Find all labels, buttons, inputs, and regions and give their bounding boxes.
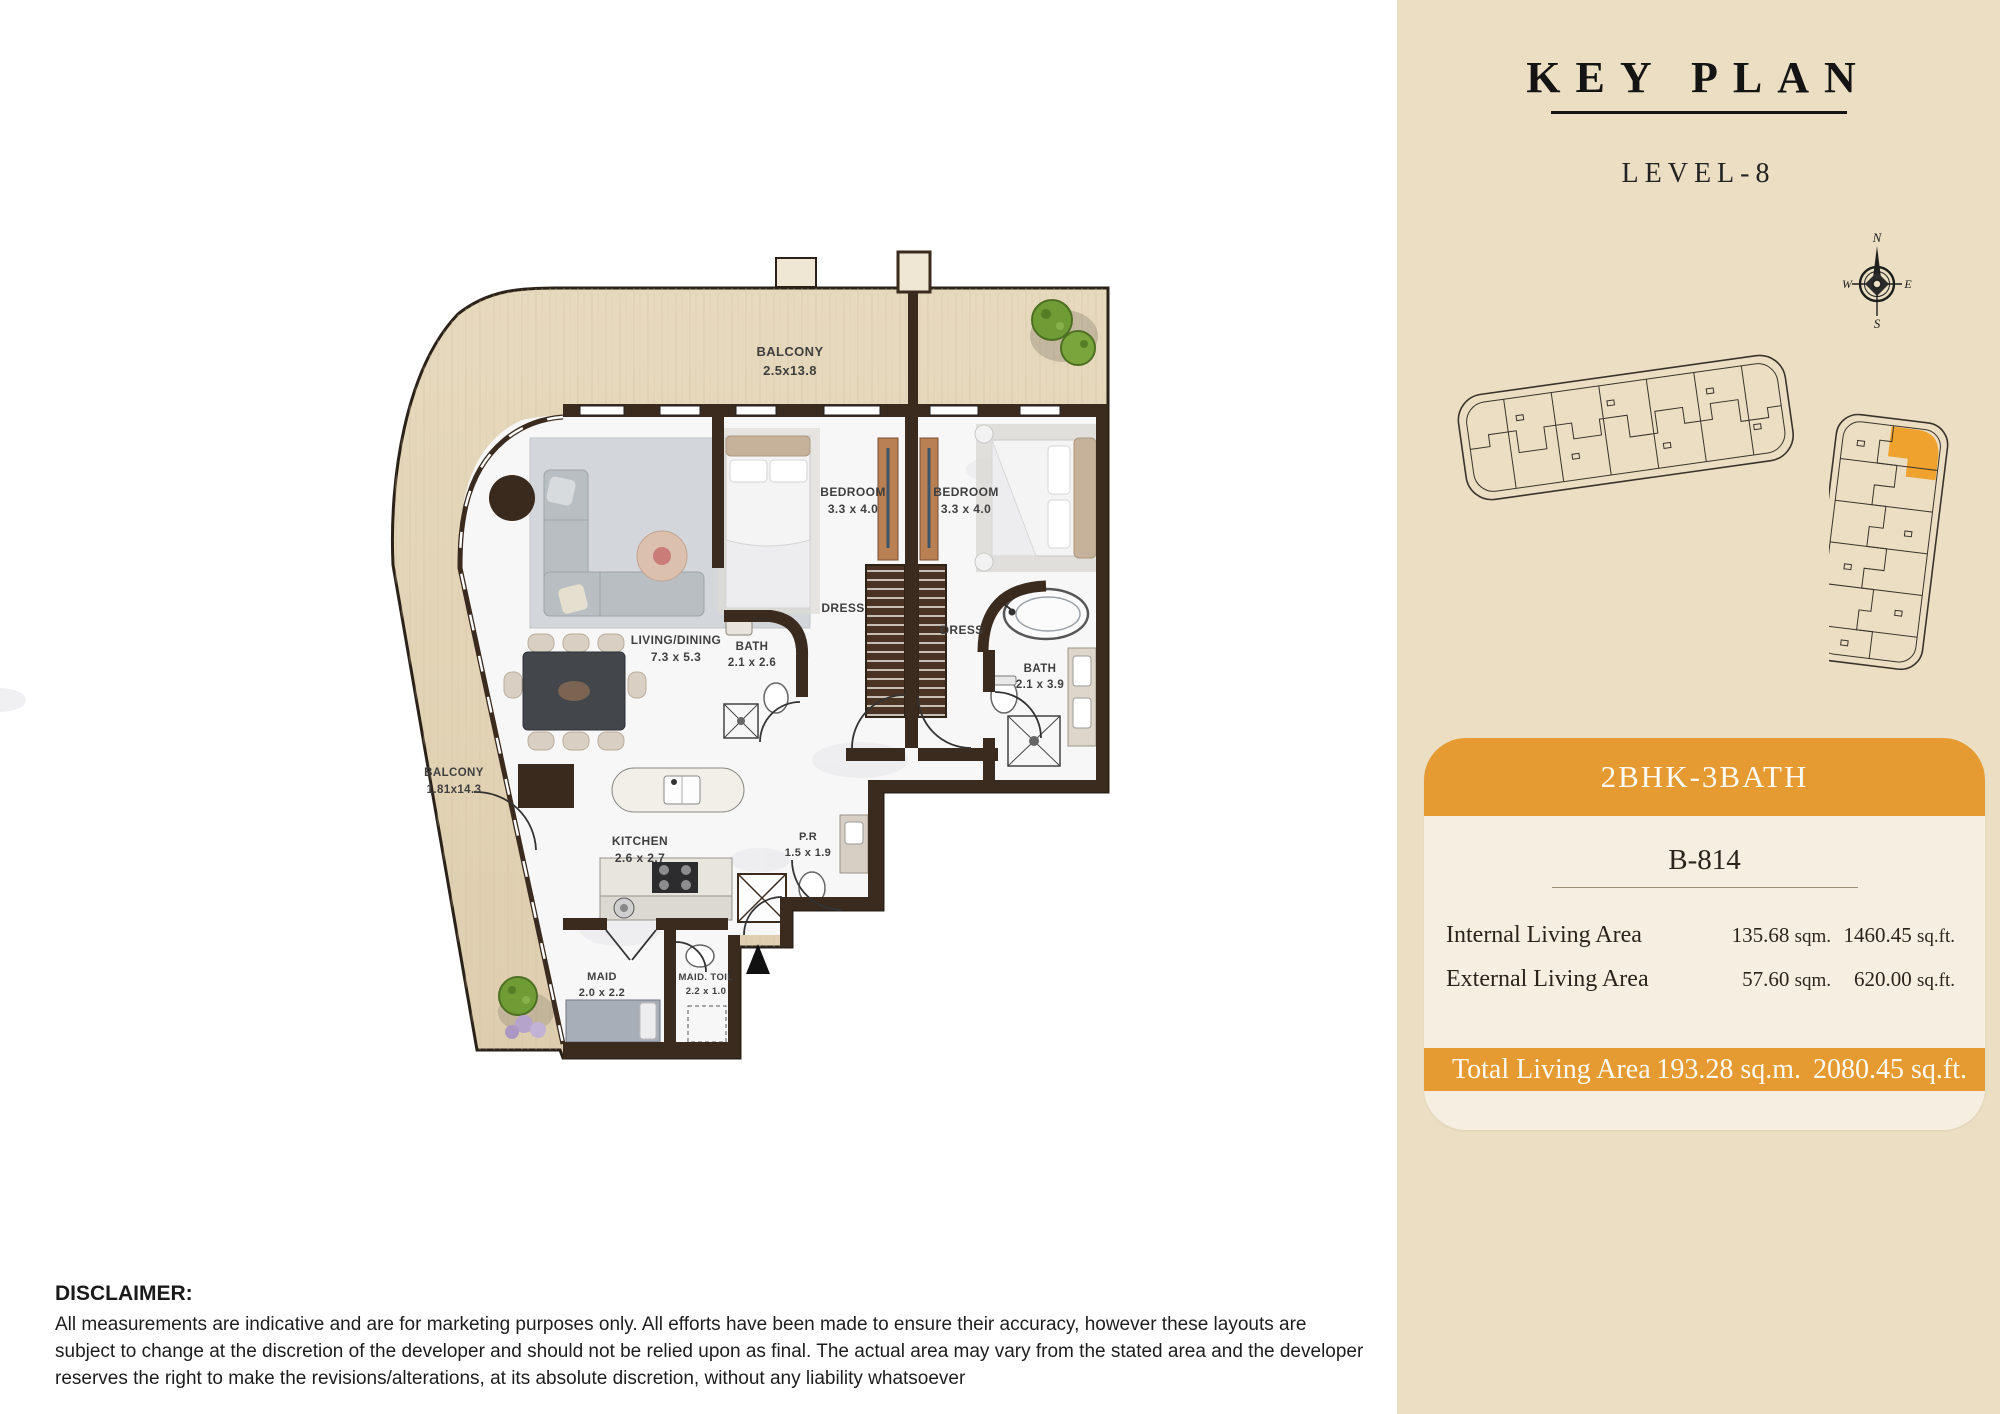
compass-icon: N W E S [1839,228,1915,332]
label-maid-dim: 2.0 x 2.2 [579,987,625,999]
disclaimer-title: DISCLAIMER: [55,1282,1370,1306]
keyplan-panel: KEY PLAN LEVEL-8 N W E S [1397,0,2000,1414]
internal-sqm: 135.68 [1732,923,1790,947]
label-bedroom2-dim: 3.3 x 4.0 [941,502,991,516]
area-row-internal: Internal Living Area 135.68 sqm. 1460.45… [1424,922,1985,949]
external-area-label: External Living Area [1446,966,1696,993]
compass-n: N [1872,230,1883,245]
dress1-wardrobe [866,565,905,717]
external-sqm: 57.60 [1742,967,1789,991]
floorplan-page: BALCONY 2.5x13.8 BALCONY 1.81x14.3 LIVIN… [0,0,2000,1414]
label-living-dim: 7.3 x 5.3 [651,650,701,664]
label-balcony-top-dim: 2.5x13.8 [763,363,817,378]
dress2-wardrobe [918,565,946,717]
label-balcony-left-dim: 1.81x14.3 [427,784,482,796]
label-dress1: DRESS [821,601,864,615]
external-sqm-unit: sqm. [1795,970,1831,991]
unit-type: 2BHK-3BATH [1601,759,1809,795]
balcony-divider-cap [898,252,930,292]
label-dress2: DRESS [940,623,983,637]
area-table: Internal Living Area 135.68 sqm. 1460.45… [1424,922,1985,993]
unit-type-header: 2BHK-3BATH [1424,738,1985,816]
label-bath2-dim: 2.1 x 3.9 [1016,679,1064,691]
total-sqft: 2080.45 sq.ft. [1813,1054,1967,1086]
keyplan-building-a [1441,342,1813,512]
external-sqft-unit: sq.ft. [1917,970,1955,991]
keyplan-building-b [1829,396,1997,698]
label-maid-toil-dim: 2.2 x 1.0 [686,986,727,997]
internal-sqft: 1460.45 [1844,923,1912,947]
disclaimer-body: All measurements are indicative and are … [55,1312,1370,1393]
side-table [489,475,535,521]
label-bedroom1-dim: 3.3 x 4.0 [828,502,878,516]
label-kitchen-dim: 2.6 x 2.7 [615,851,665,865]
compass-w: W [1842,277,1853,291]
label-bath1: BATH [736,641,769,653]
total-area-band: Total Living Area 193.28 sq.m. 2080.45 s… [1424,1048,1985,1091]
disclaimer: DISCLAIMER: All measurements are indicat… [55,1282,1370,1393]
external-sqft: 620.00 [1854,967,1912,991]
floor-plan: BALCONY 2.5x13.8 BALCONY 1.81x14.3 LIVIN… [0,0,1397,1414]
label-pr-dim: 1.5 x 1.9 [785,847,831,859]
total-area-label: Total Living Area [1424,1054,1651,1086]
internal-area-label: Internal Living Area [1446,922,1696,949]
tv-unit [518,764,574,808]
label-kitchen: KITCHEN [612,834,668,848]
label-balcony-top: BALCONY [756,344,823,359]
label-balcony-left: BALCONY [424,767,484,779]
bedroom1-bed [718,428,820,614]
label-bedroom2: BEDROOM [933,485,998,499]
internal-sqft-unit: sq.ft. [1917,926,1955,947]
label-maid-toil: MAID. TOIL [678,972,733,983]
unit-number-divider [1552,887,1858,888]
balcony-rail-detail [776,258,816,287]
unit-number: B-814 [1424,844,1985,877]
internal-sqm-unit: sqm. [1795,926,1831,947]
highlighted-unit [1886,427,1941,481]
label-bedroom1: BEDROOM [820,485,885,499]
label-living: LIVING/DINING [631,633,722,647]
compass-e: E [1903,277,1912,291]
total-sqm: 193.28 sq.m. [1656,1054,1801,1086]
label-bath2: BATH [1024,663,1057,675]
label-bath1-dim: 2.1 x 2.6 [728,657,776,669]
unit-info-card: 2BHK-3BATH B-814 Internal Living Area 13… [1424,738,1985,1130]
keyplan-title: KEY PLAN [1397,52,2000,103]
compass-s: S [1874,316,1881,331]
keyplan-title-underline [1551,111,1847,114]
keyplan-level: LEVEL-8 [1397,158,2000,190]
label-pr: P.R [799,831,817,843]
label-maid: MAID [587,971,617,983]
area-row-external: External Living Area 57.60 sqm. 620.00 s… [1424,966,1985,993]
